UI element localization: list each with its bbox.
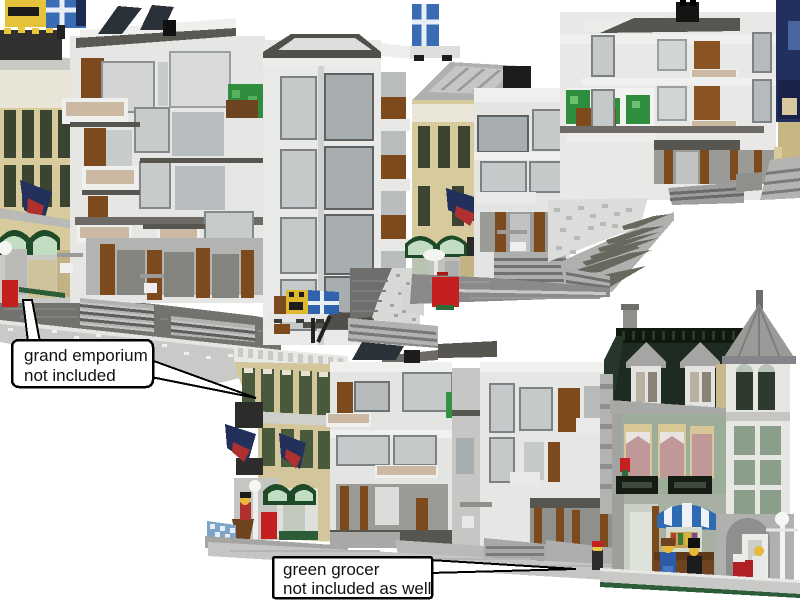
svg-text:not included as well: not included as well — [283, 579, 431, 598]
svg-text:green grocer: green grocer — [283, 560, 380, 579]
svg-text:not included: not included — [24, 366, 116, 385]
svg-text:grand emporium: grand emporium — [24, 346, 148, 365]
